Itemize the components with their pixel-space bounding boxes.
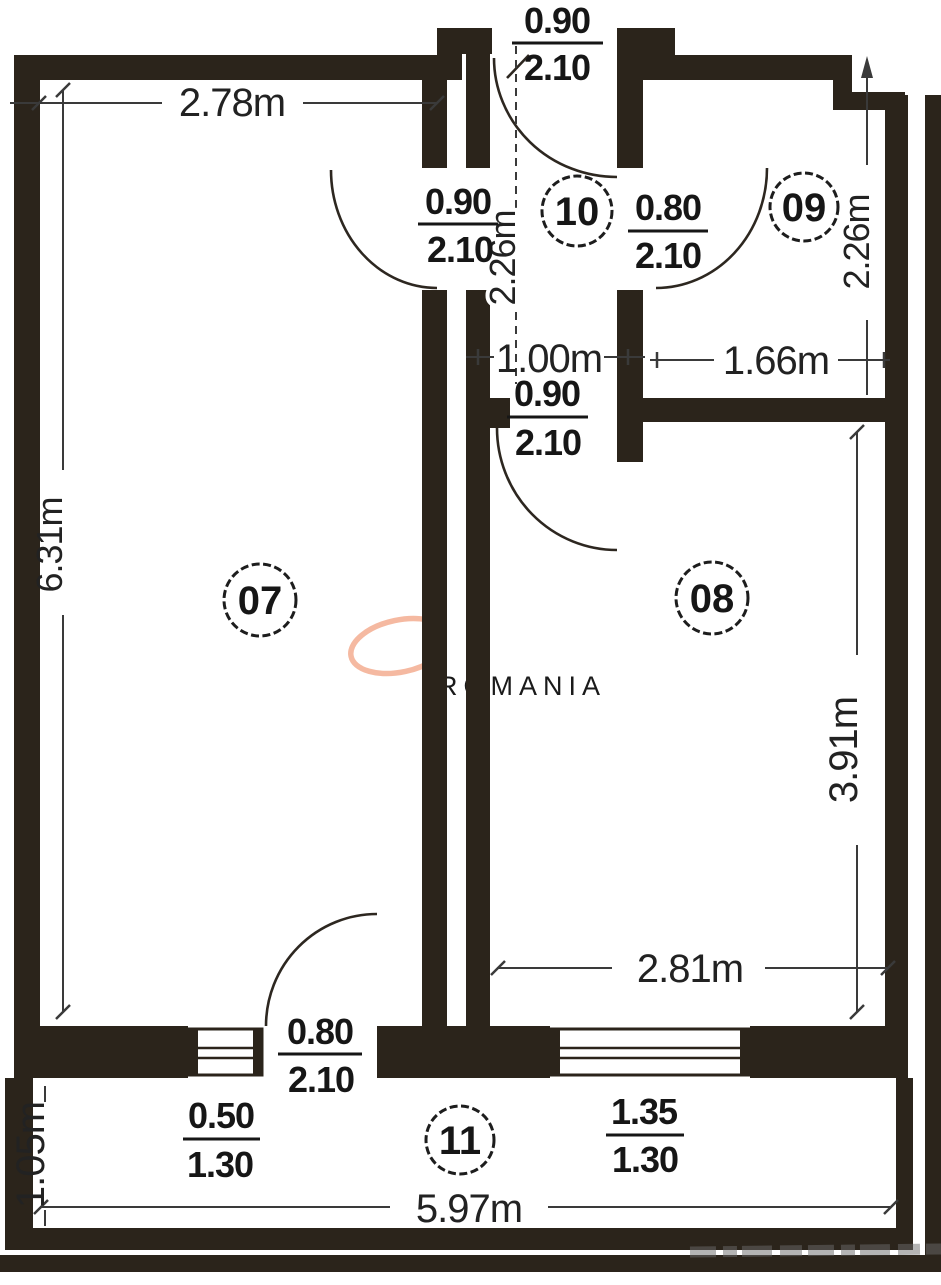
opening-width: 1.35 — [611, 1091, 678, 1132]
opening-width: 0.90 — [425, 181, 491, 222]
wall-segment — [640, 55, 843, 80]
room07-door-arc — [331, 170, 437, 288]
room08-door-label: 0.90 2.10 — [507, 373, 588, 463]
room-marker-11: 11 — [426, 1106, 494, 1174]
wall-segment — [377, 1026, 550, 1078]
watermark-brand-text: ROMANIA — [438, 671, 606, 701]
wall-segment — [617, 28, 675, 58]
opening-height: 1.30 — [187, 1144, 253, 1185]
window-frame — [551, 1029, 749, 1075]
window-jamb — [189, 1029, 198, 1075]
opening-height: 2.10 — [524, 47, 590, 88]
opening-height: 2.10 — [515, 422, 581, 463]
wall-segment — [925, 95, 941, 1272]
wall-segment — [14, 55, 437, 80]
dim-room08-height: 3.91m — [822, 697, 866, 803]
room09-door-label: 0.80 2.10 — [628, 187, 708, 276]
room07-door-label: 0.90 2.10 — [418, 181, 498, 270]
opening-width: 0.90 — [514, 373, 580, 414]
balcony-window-large-label: 1.35 1.30 — [606, 1091, 684, 1180]
window-jamb — [551, 1029, 560, 1075]
floor-plan: ROMANIA — [0, 0, 941, 1285]
room-number: 07 — [238, 579, 283, 623]
dim-room09-height: 2.26m — [836, 194, 877, 289]
wall-segment — [5, 1228, 913, 1250]
entrance-door-label: 0.90 2.10 — [512, 0, 603, 88]
opening-width: 0.90 — [524, 0, 590, 41]
wall-segment — [422, 80, 447, 168]
opening-width: 0.50 — [188, 1095, 254, 1136]
wall-segment — [422, 290, 447, 1026]
opening-width: 0.80 — [635, 187, 701, 228]
scan-artifact — [690, 1249, 941, 1252]
dim-room09-width: 1.66m — [723, 339, 829, 383]
wall-segment — [750, 1026, 908, 1078]
dim-room07-height: 6.31m — [29, 497, 70, 592]
wall-segment — [437, 54, 462, 80]
dim-arrow — [861, 56, 873, 78]
room-number: 11 — [439, 1119, 481, 1163]
window-frame — [189, 1029, 262, 1075]
balcony-door-arc — [266, 914, 377, 1026]
dim-balcony-depth: 1.05m — [9, 1102, 53, 1208]
balcony-door-label: 0.80 2.10 — [278, 1011, 362, 1100]
wall-segment — [466, 398, 510, 428]
wall-segment — [14, 1026, 188, 1078]
floor-plan-page: ROMANIA — [0, 0, 941, 1285]
opening-height: 2.10 — [427, 229, 493, 270]
room-number: 08 — [690, 577, 735, 621]
dim-balcony-width: 5.97m — [416, 1187, 522, 1231]
dim-room07-width: 2.78m — [179, 81, 285, 125]
opening-height: 1.30 — [612, 1139, 678, 1180]
opening-width: 0.80 — [287, 1011, 353, 1052]
wall-segment — [643, 398, 885, 422]
window-jamb — [253, 1029, 262, 1075]
room-number: 10 — [555, 190, 600, 234]
scan-smudge — [690, 1249, 941, 1252]
room-number: 09 — [782, 186, 827, 230]
balcony-window-small — [189, 1029, 262, 1075]
balcony-window-small-label: 0.50 1.30 — [183, 1095, 260, 1185]
opening-height: 2.10 — [288, 1059, 354, 1100]
wall-segment — [466, 28, 490, 168]
wall-segment — [617, 290, 643, 462]
wall-segment — [885, 95, 908, 1078]
balcony-window-large — [551, 1029, 749, 1075]
room-marker-08: 08 — [676, 562, 748, 634]
wall-segment — [0, 1255, 941, 1272]
room-marker-07: 07 — [224, 564, 296, 636]
room-marker-09: 09 — [770, 173, 838, 241]
opening-height: 2.10 — [635, 235, 701, 276]
wall-segment — [896, 1078, 913, 1250]
room-marker-10: 10 — [542, 176, 612, 246]
dim-room08-width: 2.81m — [637, 947, 743, 991]
window-jamb — [740, 1029, 749, 1075]
